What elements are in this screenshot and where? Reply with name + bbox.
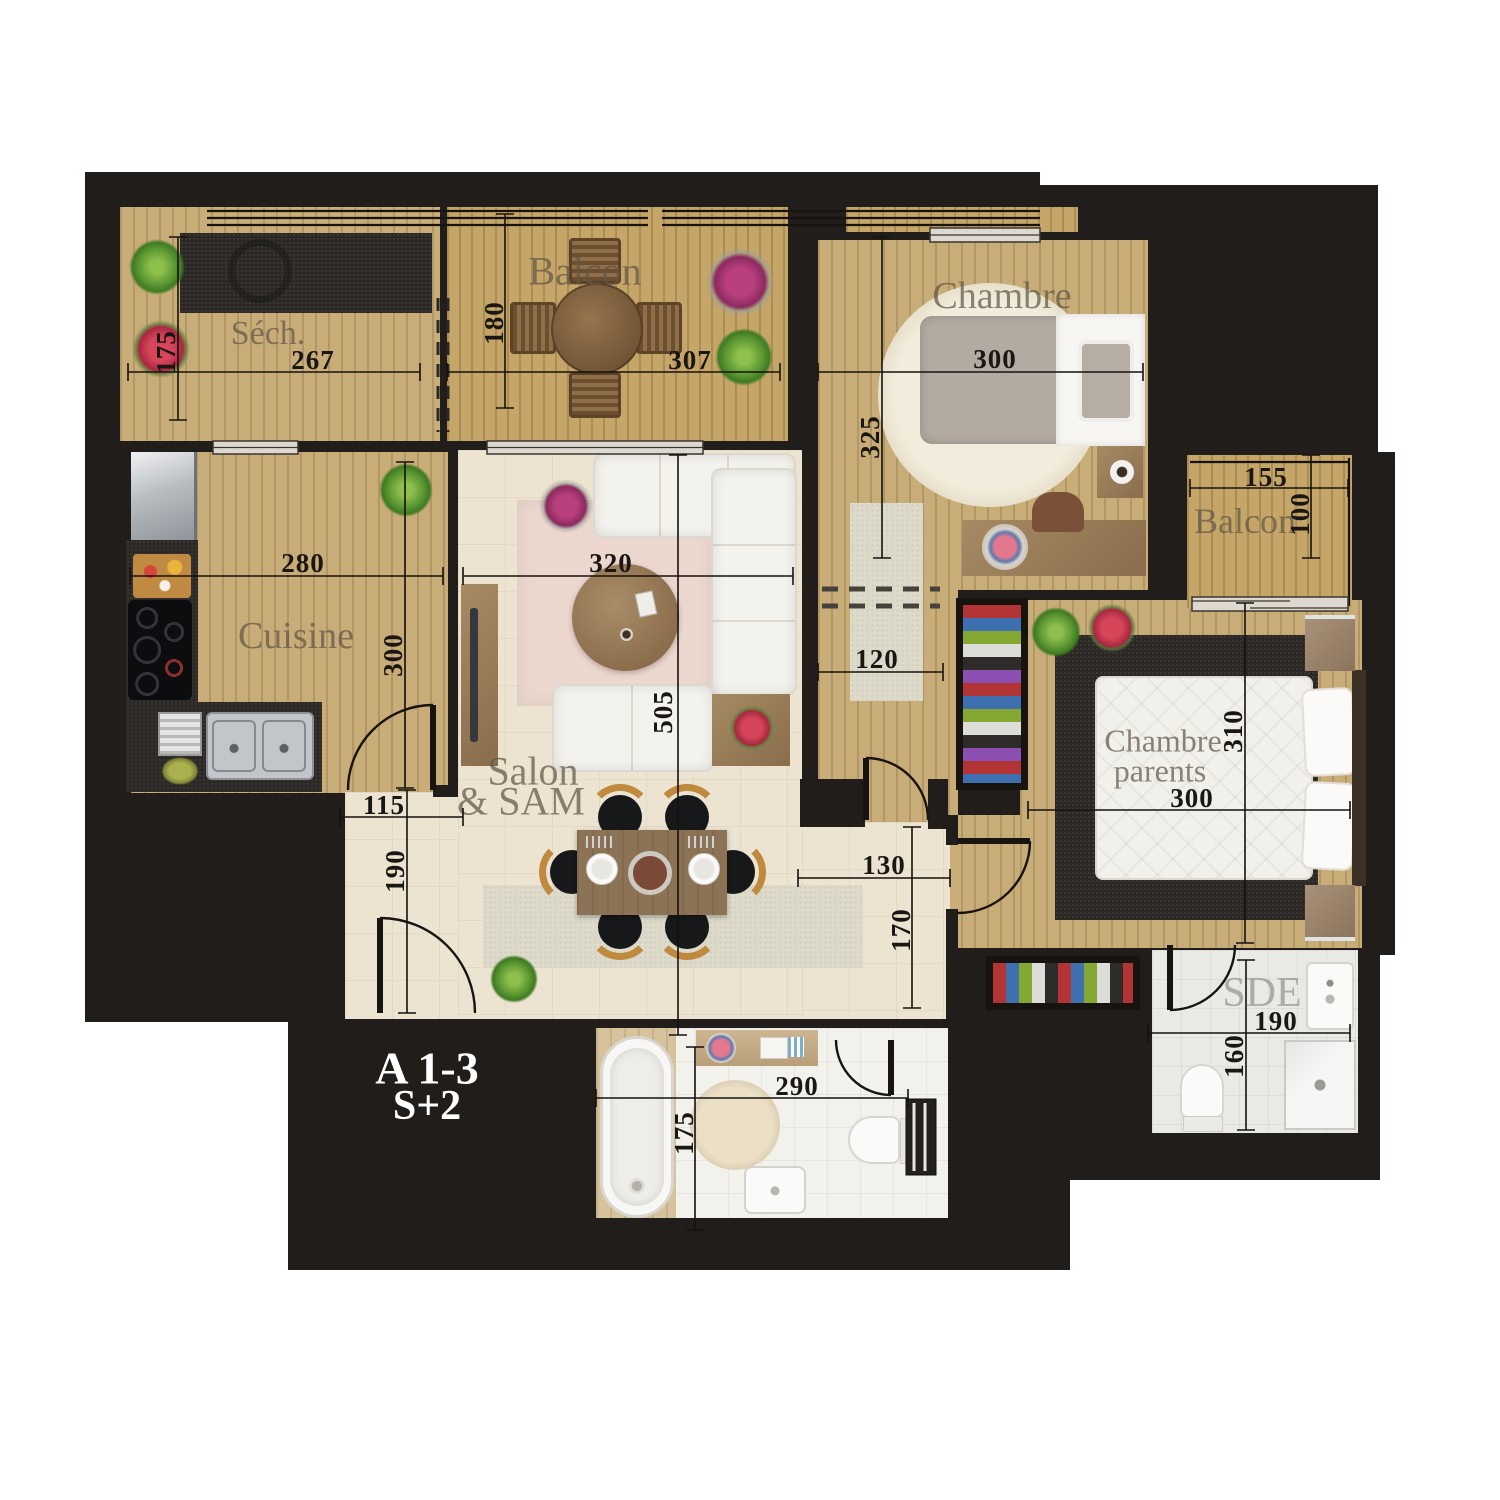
type-label: S+2 [393,1082,461,1130]
parents-entry-floor [948,815,1022,948]
tv-console [461,584,498,766]
sdb-sink [744,1166,806,1214]
dim-sdb-height: 175 [670,1098,698,1168]
balcon-strip-floor [846,207,1078,232]
sdb-towels-striped [788,1037,804,1057]
sink-bowl-left [212,720,256,772]
label-chambre: Chambre [932,274,1071,318]
wall-stub-hall-left [800,779,865,827]
sde-toilet [1180,1064,1224,1118]
dining-plate-right [688,853,720,885]
dim-corridor-height: 170 [887,895,915,965]
parents-nightstand-bottom [1305,885,1355,941]
dim-balcon-top-width: 307 [655,346,725,374]
green-plates [160,756,200,786]
sofa-corner-right [711,468,797,696]
chambre-cup [1110,460,1134,484]
plant-sech-icon [128,238,186,296]
dim-sech-width: 267 [278,346,348,374]
balcony-chair-south [569,372,621,418]
coffee-table [572,564,679,671]
chambre-laundry-basket [982,524,1028,570]
dim-hall-width: 120 [842,645,912,673]
cutlery-top-left [586,836,616,848]
flowers-balcony-icon [703,245,777,319]
flowers-salon-icon [537,477,595,535]
tv-screen [470,608,478,742]
chambre-desk-chair [1032,492,1084,532]
sde-sink [1306,962,1354,1030]
wardrobe-corridor [986,956,1140,1010]
sdb-toilet [848,1116,900,1164]
dish-rack [158,712,202,756]
wall-stub-kitchen-door [433,785,458,797]
dim-chambre-height: 325 [856,402,884,472]
label-balcon-right: Balcon [1194,500,1296,542]
dim-parents-width: 300 [1157,784,1227,812]
dim-entry-height: 190 [381,836,409,906]
label-balcon-top: Balcon [528,248,641,295]
plant-entry-icon [489,954,539,1004]
sech-mat [180,233,432,313]
dim-sde-width: 190 [1241,1007,1311,1035]
dim-chambre-width: 300 [960,345,1030,373]
sdb-towels-white [760,1037,788,1059]
cooktop [128,600,192,700]
dim-sdb-width: 290 [762,1072,832,1100]
sink-bowl-right [262,720,306,772]
dim-balcon-right-height: 100 [1286,479,1314,549]
bathtub-drain [629,1178,645,1194]
flowers-parents-icon [1086,602,1138,654]
dining-center-dish [628,851,672,895]
plant-kitchen-icon [378,462,434,518]
cutting-board [133,554,191,598]
wall-jamb-parents-top [946,815,958,845]
cutlery-top-right [688,836,718,848]
dim-salon-width: 320 [576,549,646,577]
label-cuisine: Cuisine [238,614,354,658]
chambre-pillow [1078,340,1134,422]
sech-mat-ring [228,239,292,303]
wall-stub-hall-right [928,779,948,829]
parents-nightstand-top [1305,615,1355,671]
dim-corridor-width: 130 [849,851,919,879]
dim-cuisine-width: 280 [268,549,338,577]
coffee-table-cup [620,628,633,641]
wall-jamb-parents-bottom [946,909,958,1019]
dim-cuisine-height: 300 [379,620,407,690]
dim-salon-height: 505 [649,677,677,747]
dim-balcon-top-height: 180 [480,288,508,358]
floor-plan: 267 175 180 307 300 325 155 100 280 300 … [0,0,1500,1500]
dim-entry-width: 115 [349,791,419,819]
sdb-basket [706,1033,736,1063]
parents-pillow-top [1301,687,1358,778]
dim-parents-height: 310 [1219,696,1247,766]
parents-pillow-bottom [1301,781,1358,872]
dining-plate-left [586,853,618,885]
parents-headboard [1352,670,1366,886]
flowers-side-table-icon [728,704,776,752]
plant-parents-icon [1030,606,1082,658]
wardrobe-chambre [956,598,1028,790]
fridge [131,452,197,540]
sde-toilet-tank [1183,1116,1223,1132]
sdb-toilet-tank [900,1118,914,1164]
dim-sech-height: 175 [152,317,180,387]
balcony-chair-west [510,302,556,354]
chambre-bed-duvet [920,316,1066,444]
dim-sde-height: 160 [1220,1021,1248,1091]
label-salon-line2: & SAM [457,778,585,825]
balcony-table [551,283,643,375]
sde-shower [1284,1040,1356,1130]
